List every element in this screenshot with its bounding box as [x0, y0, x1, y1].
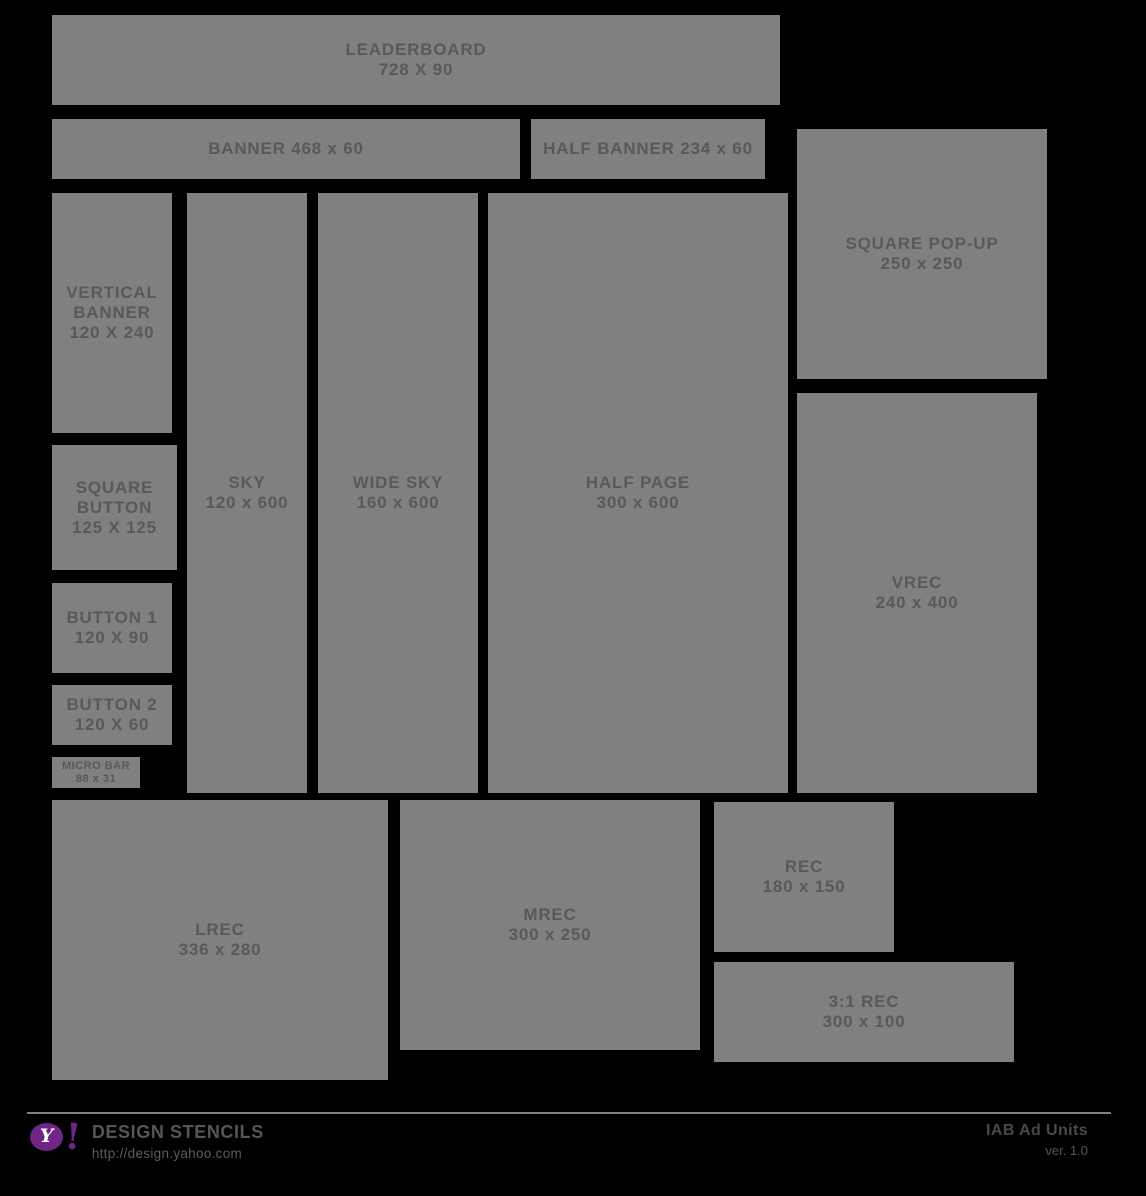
ad-box-lrec: LREC336 x 280 [52, 800, 388, 1080]
ad-box-wide-sky: WIDE SKY160 x 600 [318, 193, 478, 793]
ad-box-label-rec: REC180 x 150 [763, 857, 846, 897]
document-title: IAB Ad Units [986, 1122, 1088, 1140]
ad-box-half-page: HALF PAGE300 x 600 [488, 193, 788, 793]
ad-box-label-micro-bar: MICRO BAR88 x 31 [62, 760, 130, 786]
ad-box-label-sky: SKY120 x 600 [206, 473, 289, 513]
ad-box-label-leaderboard: LEADERBOARD728 X 90 [345, 40, 486, 80]
ad-box-label-rec-3-1: 3:1 REC300 x 100 [823, 992, 906, 1032]
ad-box-mrec: MREC300 x 250 [400, 800, 700, 1050]
footer-divider [27, 1112, 1111, 1114]
ad-box-square-pop-up: SQUARE POP-UP250 x 250 [797, 129, 1047, 379]
ad-box-label-banner: BANNER 468 x 60 [208, 139, 364, 159]
ad-box-square-button: SQUAREBUTTON125 X 125 [52, 445, 177, 570]
document-info-block: IAB Ad Units ver. 1.0 [986, 1122, 1088, 1158]
ad-box-leaderboard: LEADERBOARD728 X 90 [52, 15, 780, 105]
yahoo-y-letter: Y [40, 1127, 54, 1146]
yahoo-logo: Y ! [30, 1119, 81, 1155]
ad-box-label-vertical-banner: VERTICALBANNER120 X 240 [66, 283, 157, 343]
ad-box-vrec: VREC240 x 400 [797, 393, 1037, 793]
footer-brand: Y ! DESIGN STENCILS http://design.yahoo.… [30, 1119, 264, 1161]
ad-box-label-mrec: MREC300 x 250 [509, 905, 592, 945]
ad-box-micro-bar: MICRO BAR88 x 31 [52, 757, 140, 788]
ad-box-rec-3-1: 3:1 REC300 x 100 [714, 962, 1014, 1062]
ad-box-label-square-button: SQUAREBUTTON125 X 125 [72, 478, 157, 538]
ad-box-sky: SKY120 x 600 [187, 193, 307, 793]
ad-box-label-lrec: LREC336 x 280 [179, 920, 262, 960]
ad-box-label-button-2: BUTTON 2120 X 60 [66, 695, 157, 735]
ad-box-button-2: BUTTON 2120 X 60 [52, 685, 172, 745]
ad-box-label-vrec: VREC240 x 400 [876, 573, 959, 613]
ad-box-label-half-page: HALF PAGE300 x 600 [586, 473, 690, 513]
ad-box-half-banner: HALF BANNER 234 x 60 [531, 119, 765, 179]
ad-box-label-half-banner: HALF BANNER 234 x 60 [543, 139, 753, 159]
brand-url[interactable]: http://design.yahoo.com [92, 1146, 264, 1161]
brand-title: DESIGN STENCILS [92, 1122, 264, 1143]
brand-text-block: DESIGN STENCILS http://design.yahoo.com [92, 1119, 264, 1161]
yahoo-exclamation-icon: ! [63, 1118, 82, 1155]
yahoo-y-circle-icon: Y [30, 1123, 63, 1151]
ad-box-label-wide-sky: WIDE SKY160 x 600 [353, 473, 443, 513]
ad-box-rec: REC180 x 150 [714, 802, 894, 952]
ad-box-banner: BANNER 468 x 60 [52, 119, 520, 179]
ad-box-label-square-pop-up: SQUARE POP-UP250 x 250 [845, 234, 998, 274]
ad-box-label-button-1: BUTTON 1120 X 90 [66, 608, 157, 648]
document-version: ver. 1.0 [986, 1143, 1088, 1158]
stencil-sheet: LEADERBOARD728 X 90BANNER 468 x 60HALF B… [0, 0, 1146, 1196]
ad-box-vertical-banner: VERTICALBANNER120 X 240 [52, 193, 172, 433]
ad-box-button-1: BUTTON 1120 X 90 [52, 583, 172, 673]
